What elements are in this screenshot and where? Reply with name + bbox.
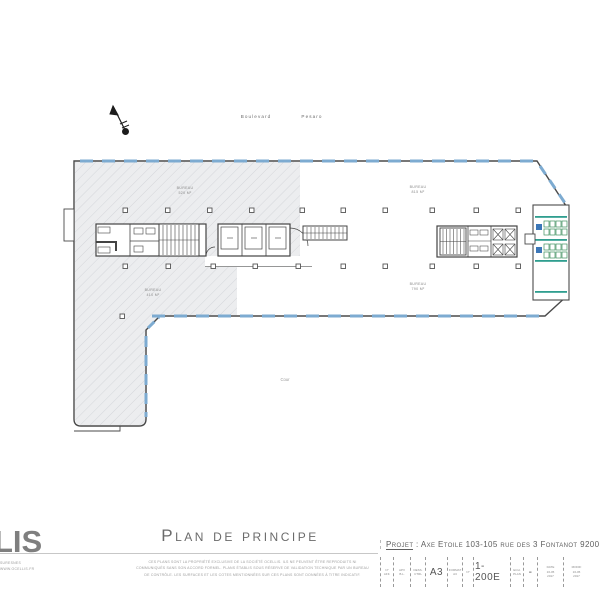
street-label-pesaro: Pesaro xyxy=(290,114,334,119)
company-logo: LIS xyxy=(0,524,42,560)
area-label: Bureau815 m² xyxy=(398,185,438,196)
field-micro-text: 2017 xyxy=(573,574,580,579)
field-micro-text: B.L. xyxy=(399,572,404,577)
area-label: Bureau410 m² xyxy=(133,288,173,299)
area-label: Bureau520 m² xyxy=(165,186,205,197)
north-arrow-icon xyxy=(110,106,129,135)
street-label-boulevard: Boulevard xyxy=(225,114,287,119)
titleblock-field-cell: Modif16-052017 xyxy=(563,557,589,587)
field-micro-text: Plan xyxy=(513,572,521,577)
left-core xyxy=(96,224,206,256)
project-separator: : xyxy=(413,540,420,549)
disclaimer-text: Ces plans sont la propriété exclusive de… xyxy=(100,559,405,578)
field-value: A3 xyxy=(430,567,443,578)
titleblock-field-cell: Dess.Ctrl xyxy=(410,557,425,587)
sheet-title: Plan de principe xyxy=(100,526,380,546)
company-logo-subtext: Suresnes www.ocellis.fr xyxy=(0,560,34,573)
titleblock-field-cell: N° xyxy=(462,557,473,587)
titleblock-field-cell: APVB.L. xyxy=(393,557,410,587)
field-micro-text: 2017 xyxy=(547,574,554,579)
titleblock-field-cell: Date16-052017 xyxy=(537,557,563,587)
titleblock-field-cell: 1-200E xyxy=(473,557,510,587)
drawing-sheet: Boulevard Pesaro Bureau520 m² Bureau410 … xyxy=(0,0,600,600)
field-micro-text: A3 xyxy=(453,572,457,577)
titleblock-field-cell: A3 xyxy=(425,557,447,587)
titleblock-divider xyxy=(0,553,378,554)
titleblock-field-cell: FormatA3 xyxy=(447,557,462,587)
titleblock-field-cell: - xyxy=(523,557,537,587)
stair-left xyxy=(159,224,199,256)
field-micro-text: N° xyxy=(466,570,469,575)
titleblock-field-cell: N°Aff. xyxy=(380,557,393,587)
field-micro-text: Aff. xyxy=(384,572,390,577)
area-label: Bureau790 m² xyxy=(398,282,438,293)
titleblock-fields-row: N°Aff.APVB.L.Dess.CtrlA3FormatA3N°1-200E… xyxy=(380,557,589,587)
titleblock-field-cell: Ech.Plan xyxy=(510,557,523,587)
project-label: Projet xyxy=(386,540,413,550)
courtyard-label: Cour xyxy=(270,377,300,382)
field-value: - xyxy=(529,567,533,578)
stair-middle xyxy=(303,226,347,240)
right-wing-detail xyxy=(525,205,569,300)
right-core xyxy=(437,226,517,257)
stair-right xyxy=(440,228,466,255)
hatched-floor-area xyxy=(75,162,300,425)
project-line: Projet : Axe Etoile 103-105 rue des 3 Fo… xyxy=(380,540,600,549)
project-value: Axe Etoile 103-105 rue des 3 Fontanot 92… xyxy=(421,540,600,549)
field-value: 1-200E xyxy=(475,561,509,583)
field-micro-text: Ctrl xyxy=(414,572,422,577)
floor-plan-drawing xyxy=(0,0,600,520)
